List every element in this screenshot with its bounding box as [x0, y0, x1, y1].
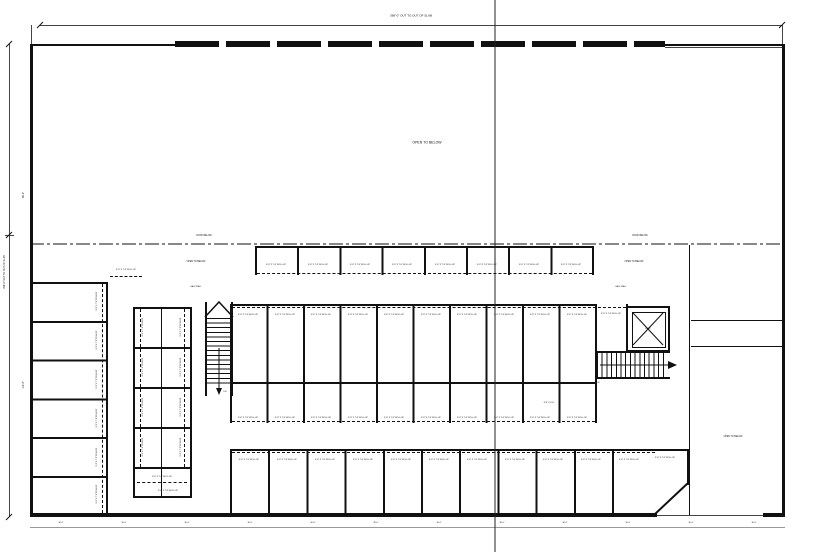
- bottom-dim-bay: 30'-0": [156, 519, 219, 526]
- mid-block-bottom-door-line2: [142, 496, 192, 497]
- rollup-door-label: 8'-8" X 7'-8" ROLL-UP: [530, 417, 550, 419]
- rollup-door-label: 8'-8" X 7'-8" ROLL-UP: [494, 314, 514, 316]
- rollup-door-label: 8'-8" X 7'-8" ROLL-UP: [348, 417, 368, 419]
- mid-block-bottom-door-label: 8'-8" X 7'-8" ROLL-UP: [152, 476, 172, 478]
- mid-unit-door-label: 8'-8" X 7'-8" ROLL-UP: [142, 438, 144, 457]
- unit-bay: 8'-8" X 7'-8" ROLL-UP: [382, 456, 420, 463]
- rowC-top-wall: [230, 449, 689, 451]
- mid-unit-door-label: 8'-8" X 7'-8" ROLL-UP: [180, 398, 182, 417]
- left-dimension-line: [9, 44, 10, 517]
- mid-unit-door-label: 8'-8" X 7'-8" ROLL-UP: [180, 318, 182, 337]
- unit-bay: 8'-8" X 7'-8" ROLL-UP: [449, 311, 486, 318]
- unit-bay: 8'-8" X 7'-8" ROLL-UP: [230, 456, 268, 463]
- unit-bay: 8'-8" X 7'-8" ROLL-UP: [230, 414, 267, 421]
- unit-bay: 8'-8" X 7'-8" ROLL-UP: [255, 261, 297, 268]
- rollup-door-label: 8'-8" X 7'-8" ROLL-UP: [494, 417, 514, 419]
- left-stub-door-line: [110, 276, 142, 277]
- roof-below-left-label: ROOF BELOW: [196, 235, 211, 237]
- left-units-door-line: [102, 284, 103, 513]
- unit-bay: 8'-8" X 7'-8" ROLL-UP: [339, 261, 381, 268]
- unit-bay: 8'-8" X 7'-8" ROLL-UP: [376, 311, 413, 318]
- unit-bay: 8'-8" X 7'-8" ROLL-UP: [486, 414, 523, 421]
- bottom-dim-bay: 30'-0": [345, 519, 408, 526]
- rollup-door-label: 8'-8" X 7'-8" ROLL-UP: [429, 459, 449, 461]
- bottom-dimension-text: 30'-0": [436, 522, 441, 524]
- rollup-door-label: 8'-8" X 7'-8" ROLL-UP: [530, 314, 550, 316]
- left-unit-door-label: 8'-8" X 7'-8" ROLL-UP: [96, 448, 98, 467]
- open-to-below-right-zone-label: OPEN TO BELOW: [724, 436, 743, 438]
- unit-bay: 8'-8" X 7'-8" ROLL-UP: [522, 311, 559, 318]
- rowB-door-line: [232, 421, 595, 422]
- mid-unit-door-label: 8'-8" X 7'-8" ROLL-UP: [180, 358, 182, 377]
- mid-unit-door-label: 8'-8" X 7'-8" ROLL-UP: [142, 398, 144, 417]
- unit-bay: 8'-8" X 7'-8" ROLL-UP: [496, 456, 534, 463]
- unit-bay: 8'-8" X 7'-8" ROLL-UP: [559, 311, 596, 318]
- unit-bay: 8'-8" X 7'-8" ROLL-UP: [230, 311, 267, 318]
- unit-bay: 8'-8" X 7'-8" ROLL-UP: [559, 414, 596, 421]
- bottom-dimension-labels: 30'-0" 30'-0"30'-0"30'-0"30'-0"30'-0"30'…: [30, 519, 785, 526]
- rollup-door-label: 8'-8" X 7'-8" ROLL-UP: [275, 314, 295, 316]
- top-dimension-line: [40, 25, 783, 26]
- bottom-dim-bay: 30'-0": [596, 519, 659, 526]
- elevator-label: ELEV: [645, 328, 650, 330]
- rowB-door-labels: 8'-8" X 7'-8" ROLL-UP 8'-8" X 7'-8" ROLL…: [230, 414, 595, 421]
- mid-block-center-wall: [161, 307, 162, 498]
- rollup-door-label: 8'-8" X 7'-8" ROLL-UP: [311, 417, 331, 419]
- rowA-door-labels: 8'-8" X 7'-8" ROLL-UP 8'-8" X 7'-8" ROLL…: [230, 311, 595, 318]
- rollup-door-label: 8'-8" X 7'-8" ROLL-UP: [308, 264, 328, 266]
- rollup-door-label: 8'-8" X 7'-8" ROLL-UP: [315, 459, 335, 461]
- left-unit-door-label: 8'-8" X 7'-8" ROLL-UP: [96, 409, 98, 428]
- rollup-door-label: 8'-8" X 7'-8" ROLL-UP: [350, 264, 370, 266]
- left-upper-dim-text: 96'-0": [23, 192, 25, 198]
- bottom-dimension-text: 30'-0": [185, 522, 190, 524]
- left-unit-door-label: 8'-8" X 7'-8" ROLL-UP: [96, 292, 98, 311]
- stair-cap: [205, 302, 233, 317]
- bottom-dimension-text: 30'-0": [374, 522, 379, 524]
- unit-bay: 8'-8" X 7'-8" ROLL-UP: [303, 311, 340, 318]
- unit-bay: 8'-8" X 7'-8" ROLL-UP: [534, 456, 572, 463]
- rollup-door-label: 8'-8" X 7'-8" ROLL-UP: [348, 314, 368, 316]
- rollup-door-label: 8'-8" X 7'-8" ROLL-UP: [567, 314, 587, 316]
- rollup-door-label: 8'-8" X 7'-8" ROLL-UP: [384, 417, 404, 419]
- unit-bay: 8'-8" X 7'-8" ROLL-UP: [267, 414, 304, 421]
- rollup-door-label: 8'-8" X 7'-8" ROLL-UP: [238, 417, 258, 419]
- chamfer-unit-door-label: 8'-8" X 7'-8" ROLL-UP: [655, 457, 675, 459]
- rollup-door-label: 8'-8" X 7'-8" ROLL-UP: [421, 417, 441, 419]
- rollup-door-label: 8'-8" X 7'-8" ROLL-UP: [519, 264, 539, 266]
- rowA-door-line: [232, 307, 626, 308]
- unit-bay: 8'-8" X 7'-8" ROLL-UP: [420, 456, 458, 463]
- unit-bay: 8'-8" X 7'-8" ROLL-UP: [306, 456, 344, 463]
- bottom-dim-bay: 30'-0": [408, 519, 471, 526]
- unit-bay: 8'-8" X 7'-8" ROLL-UP: [268, 456, 306, 463]
- chamfer-wall: [655, 483, 688, 514]
- left-unit-door-label: 8'-8" X 7'-8" ROLL-UP: [96, 331, 98, 350]
- unit-bay: 8'-8" X 7'-8" ROLL-UP: [340, 414, 377, 421]
- left-dim-tick: [5, 235, 14, 236]
- right-zone-wall: [689, 245, 690, 515]
- bottom-dim-bay: 30'-0": [659, 519, 722, 526]
- bottom-dimension-text: 30'-0": [625, 522, 630, 524]
- stair-treads: [207, 318, 231, 386]
- mid-block-bottom-door-label2: 8'-8" X 7'-8" ROLL-UP: [158, 490, 178, 492]
- right-stair-bottom-wall: [595, 377, 670, 379]
- open-to-below-left-label: OPEN TO BELOW: [187, 261, 206, 263]
- unit-bay: 8'-8" X 7'-8" ROLL-UP: [413, 311, 450, 318]
- bottom-wall-right: [763, 513, 785, 517]
- unit-bay: 8'-8" X 7'-8" ROLL-UP: [413, 414, 450, 421]
- bottom-dim-bay: 30'-0": [282, 519, 345, 526]
- rollup-door-label: 8'-8" X 7'-8" ROLL-UP: [238, 314, 258, 316]
- top-wall-left: [30, 44, 175, 46]
- rollup-door-label: 8'-8" X 7'-8" ROLL-UP: [457, 417, 477, 419]
- rollup-door-label: 8'-8" X 7'-8" ROLL-UP: [477, 264, 497, 266]
- bottom-dimension-text: 30'-0": [562, 522, 567, 524]
- half-wall-left-note: HALF WALL: [190, 286, 201, 288]
- rollup-door-label: 8'-8" X 7'-8" ROLL-UP: [275, 417, 295, 419]
- elevator-left-wall: [626, 306, 628, 352]
- unit-bay: 8'-8" X 7'-8" ROLL-UP: [340, 311, 377, 318]
- right-stair-dn-label: DN: [597, 382, 600, 384]
- unit-bay: 8'-8" X 7'-8" ROLL-UP: [466, 261, 508, 268]
- bottom-dimension-text: 30'-0": [499, 522, 504, 524]
- bottom-dim-bay: 30'-0": [470, 519, 533, 526]
- unit-bay: 8'-8" X 7'-8" ROLL-UP: [344, 456, 382, 463]
- bottom-dim-bay: 30'-0": [30, 519, 93, 526]
- top-dimension-text: 368'-0" OUT TO OUT OF SLAB: [390, 15, 432, 18]
- unit-bay: 8'-8" X 7'-8" ROLL-UP: [572, 456, 610, 463]
- rollup-door-label: 8'-8" X 7'-8" ROLL-UP: [619, 459, 639, 461]
- left-units-partitions: [30, 282, 108, 515]
- unit-bay: 8'-8" X 7'-8" ROLL-UP: [449, 414, 486, 421]
- top-wall-right-inner: [665, 47, 782, 48]
- rollup-door-label: 8'-8" X 7'-8" ROLL-UP: [311, 314, 331, 316]
- right-wall: [782, 44, 785, 517]
- mid-block-divider: [133, 467, 192, 469]
- top-row-door-line: [257, 273, 592, 274]
- unit-bay: 8'-8" X 7'-8" ROLL-UP: [550, 261, 592, 268]
- top-wall-middle: [175, 41, 665, 47]
- rollup-door-label: 8'-8" X 7'-8" ROLL-UP: [391, 459, 411, 461]
- unit-bay: 8'-8" X 7'-8" ROLL-UP: [486, 311, 523, 318]
- rowC-door-labels: 8'-8" X 7'-8" ROLL-UP 8'-8" X 7'-8" ROLL…: [230, 456, 648, 463]
- elevator-cab: [632, 312, 666, 348]
- roof-below-right-label: ROOF BELOW: [632, 235, 647, 237]
- top-dim-extension-left: [31, 25, 32, 44]
- left-unit-door-label: 8'-8" X 7'-8" ROLL-UP: [96, 370, 98, 389]
- bottom-dimension-text: 30'-0": [688, 522, 693, 524]
- rollup-door-label: 8'-8" X 7'-8" ROLL-UP: [567, 417, 587, 419]
- bottom-dimension-text: 30'-0": [59, 522, 64, 524]
- unit-bay: 8'-8" X 7'-8" ROLL-UP: [381, 261, 423, 268]
- floor-plan: 368'-0" OUT TO OUT OF SLAB 206'-0" OUT T…: [0, 0, 819, 552]
- right-zone-line1: [691, 320, 782, 321]
- elevator-top-wall: [626, 306, 670, 308]
- rollup-door-label: 8'-8" X 7'-8" ROLL-UP: [277, 459, 297, 461]
- bottom-dim-bay: 30'-0": [93, 519, 156, 526]
- open-to-below-mid-right-label: OPEN TO BELOW: [625, 261, 644, 263]
- rollup-door-label: 8'-8" X 7'-8" ROLL-UP: [505, 459, 525, 461]
- bottom-dim-bay: 30'-0": [722, 519, 785, 526]
- bottom-wall-thin: [657, 515, 767, 516]
- top-wall-right: [665, 44, 785, 46]
- rowA-top-wall: [230, 304, 597, 306]
- right-zone-line2: [691, 346, 782, 347]
- left-lower-dim-text: 110'-0": [23, 381, 25, 388]
- unit-bay: 8'-8" X 7'-8" ROLL-UP: [610, 456, 648, 463]
- unit-bay: 8'-8" X 7'-8" ROLL-UP: [508, 261, 550, 268]
- top-row-top-wall: [255, 246, 594, 248]
- mid-block-door-line-right: [184, 309, 185, 467]
- unit-bay: 8'-8" X 7'-8" ROLL-UP: [424, 261, 466, 268]
- bottom-dim-bay: 30'-0": [219, 519, 282, 526]
- left-stub-door-label: 8'-8" X 7'-8" ROLL-UP: [116, 269, 136, 271]
- mid-block-right-wall: [190, 307, 192, 498]
- lobby-unit-door-label: 8'-8" X 7'-8" ROLL-UP: [601, 313, 621, 315]
- left-units-right-wall: [106, 282, 108, 515]
- rollup-door-label: 8'-8" X 7'-8" ROLL-UP: [467, 459, 487, 461]
- bottom-dimension-line: [30, 527, 785, 528]
- mid-unit-door-label: 8'-8" X 7'-8" ROLL-UP: [142, 358, 144, 377]
- rollup-door-label: 8'-8" X 7'-8" ROLL-UP: [581, 459, 601, 461]
- bottom-dimension-text: 30'-0": [122, 522, 127, 524]
- mid-block-bottom-door-line: [137, 482, 187, 483]
- top-row-door-labels: 8'-8" X 7'-8" ROLL-UP 8'-8" X 7'-8" ROLL…: [255, 261, 592, 268]
- unit-bay: 8'-8" X 7'-8" ROLL-UP: [303, 414, 340, 421]
- mid-unit-door-label: 8'-8" X 7'-8" ROLL-UP: [180, 438, 182, 457]
- unit-bay: 8'-8" X 7'-8" ROLL-UP: [297, 261, 339, 268]
- bottom-dimension-text: 30'-0": [248, 522, 253, 524]
- rollup-door-label: 8'-8" X 7'-8" ROLL-UP: [421, 314, 441, 316]
- rollup-door-label: 8'-8" X 7'-8" ROLL-UP: [239, 459, 259, 461]
- rowC-door-line: [232, 452, 655, 453]
- stair-dn-label: DN: [224, 391, 227, 393]
- bottom-dim-bay: 30'-0": [533, 519, 596, 526]
- rollup-door-label: 8'-8" X 7'-8" ROLL-UP: [353, 459, 373, 461]
- open-to-below-main-label: OPEN TO BELOW: [412, 141, 441, 145]
- mid-block-left-wall: [133, 307, 135, 498]
- rollup-door-label: 8'-8" X 7'-8" ROLL-UP: [384, 314, 404, 316]
- unit-bay: 8'-8" X 7'-8" ROLL-UP: [522, 414, 559, 421]
- unit-bay: 8'-8" X 7'-8" ROLL-UP: [376, 414, 413, 421]
- mid-unit-door-label: 8'-8" X 7'-8" ROLL-UP: [142, 318, 144, 337]
- left-unit-door-label: 8'-8" X 7'-8" ROLL-UP: [96, 485, 98, 504]
- top-row-right-wall: [592, 246, 594, 275]
- rollup-door-label: 8'-8" X 7'-8" ROLL-UP: [543, 459, 563, 461]
- bottom-dimension-text: 30'-0": [751, 522, 756, 524]
- rollup-door-label: 8'-8" X 7'-8" ROLL-UP: [266, 264, 286, 266]
- right-stair-treads: [597, 353, 667, 377]
- rollup-door-label: 8'-8" X 7'-8" ROLL-UP: [561, 264, 581, 266]
- elevator-right-wall: [668, 306, 670, 352]
- half-wall-right-note: HALF WALL: [615, 286, 626, 288]
- rollup-door-label: 8'-8" X 7'-8" ROLL-UP: [457, 314, 477, 316]
- unit-bay: 8'-8" X 7'-8" ROLL-UP: [267, 311, 304, 318]
- rollup-door-label: 8'-8" X 7'-8" ROLL-UP: [393, 264, 413, 266]
- left-dimension-text: 206'-0" OUT TO OUT OF SLAB: [4, 255, 6, 289]
- top-dim-extension-right: [782, 25, 783, 44]
- bottom-dimension-text: 30'-0": [311, 522, 316, 524]
- unit-bay: 8'-8" X 7'-8" ROLL-UP: [458, 456, 496, 463]
- small-unit-label: 8'-8" X 6'-8": [544, 402, 554, 404]
- rollup-door-label: 8'-8" X 7'-8" ROLL-UP: [435, 264, 455, 266]
